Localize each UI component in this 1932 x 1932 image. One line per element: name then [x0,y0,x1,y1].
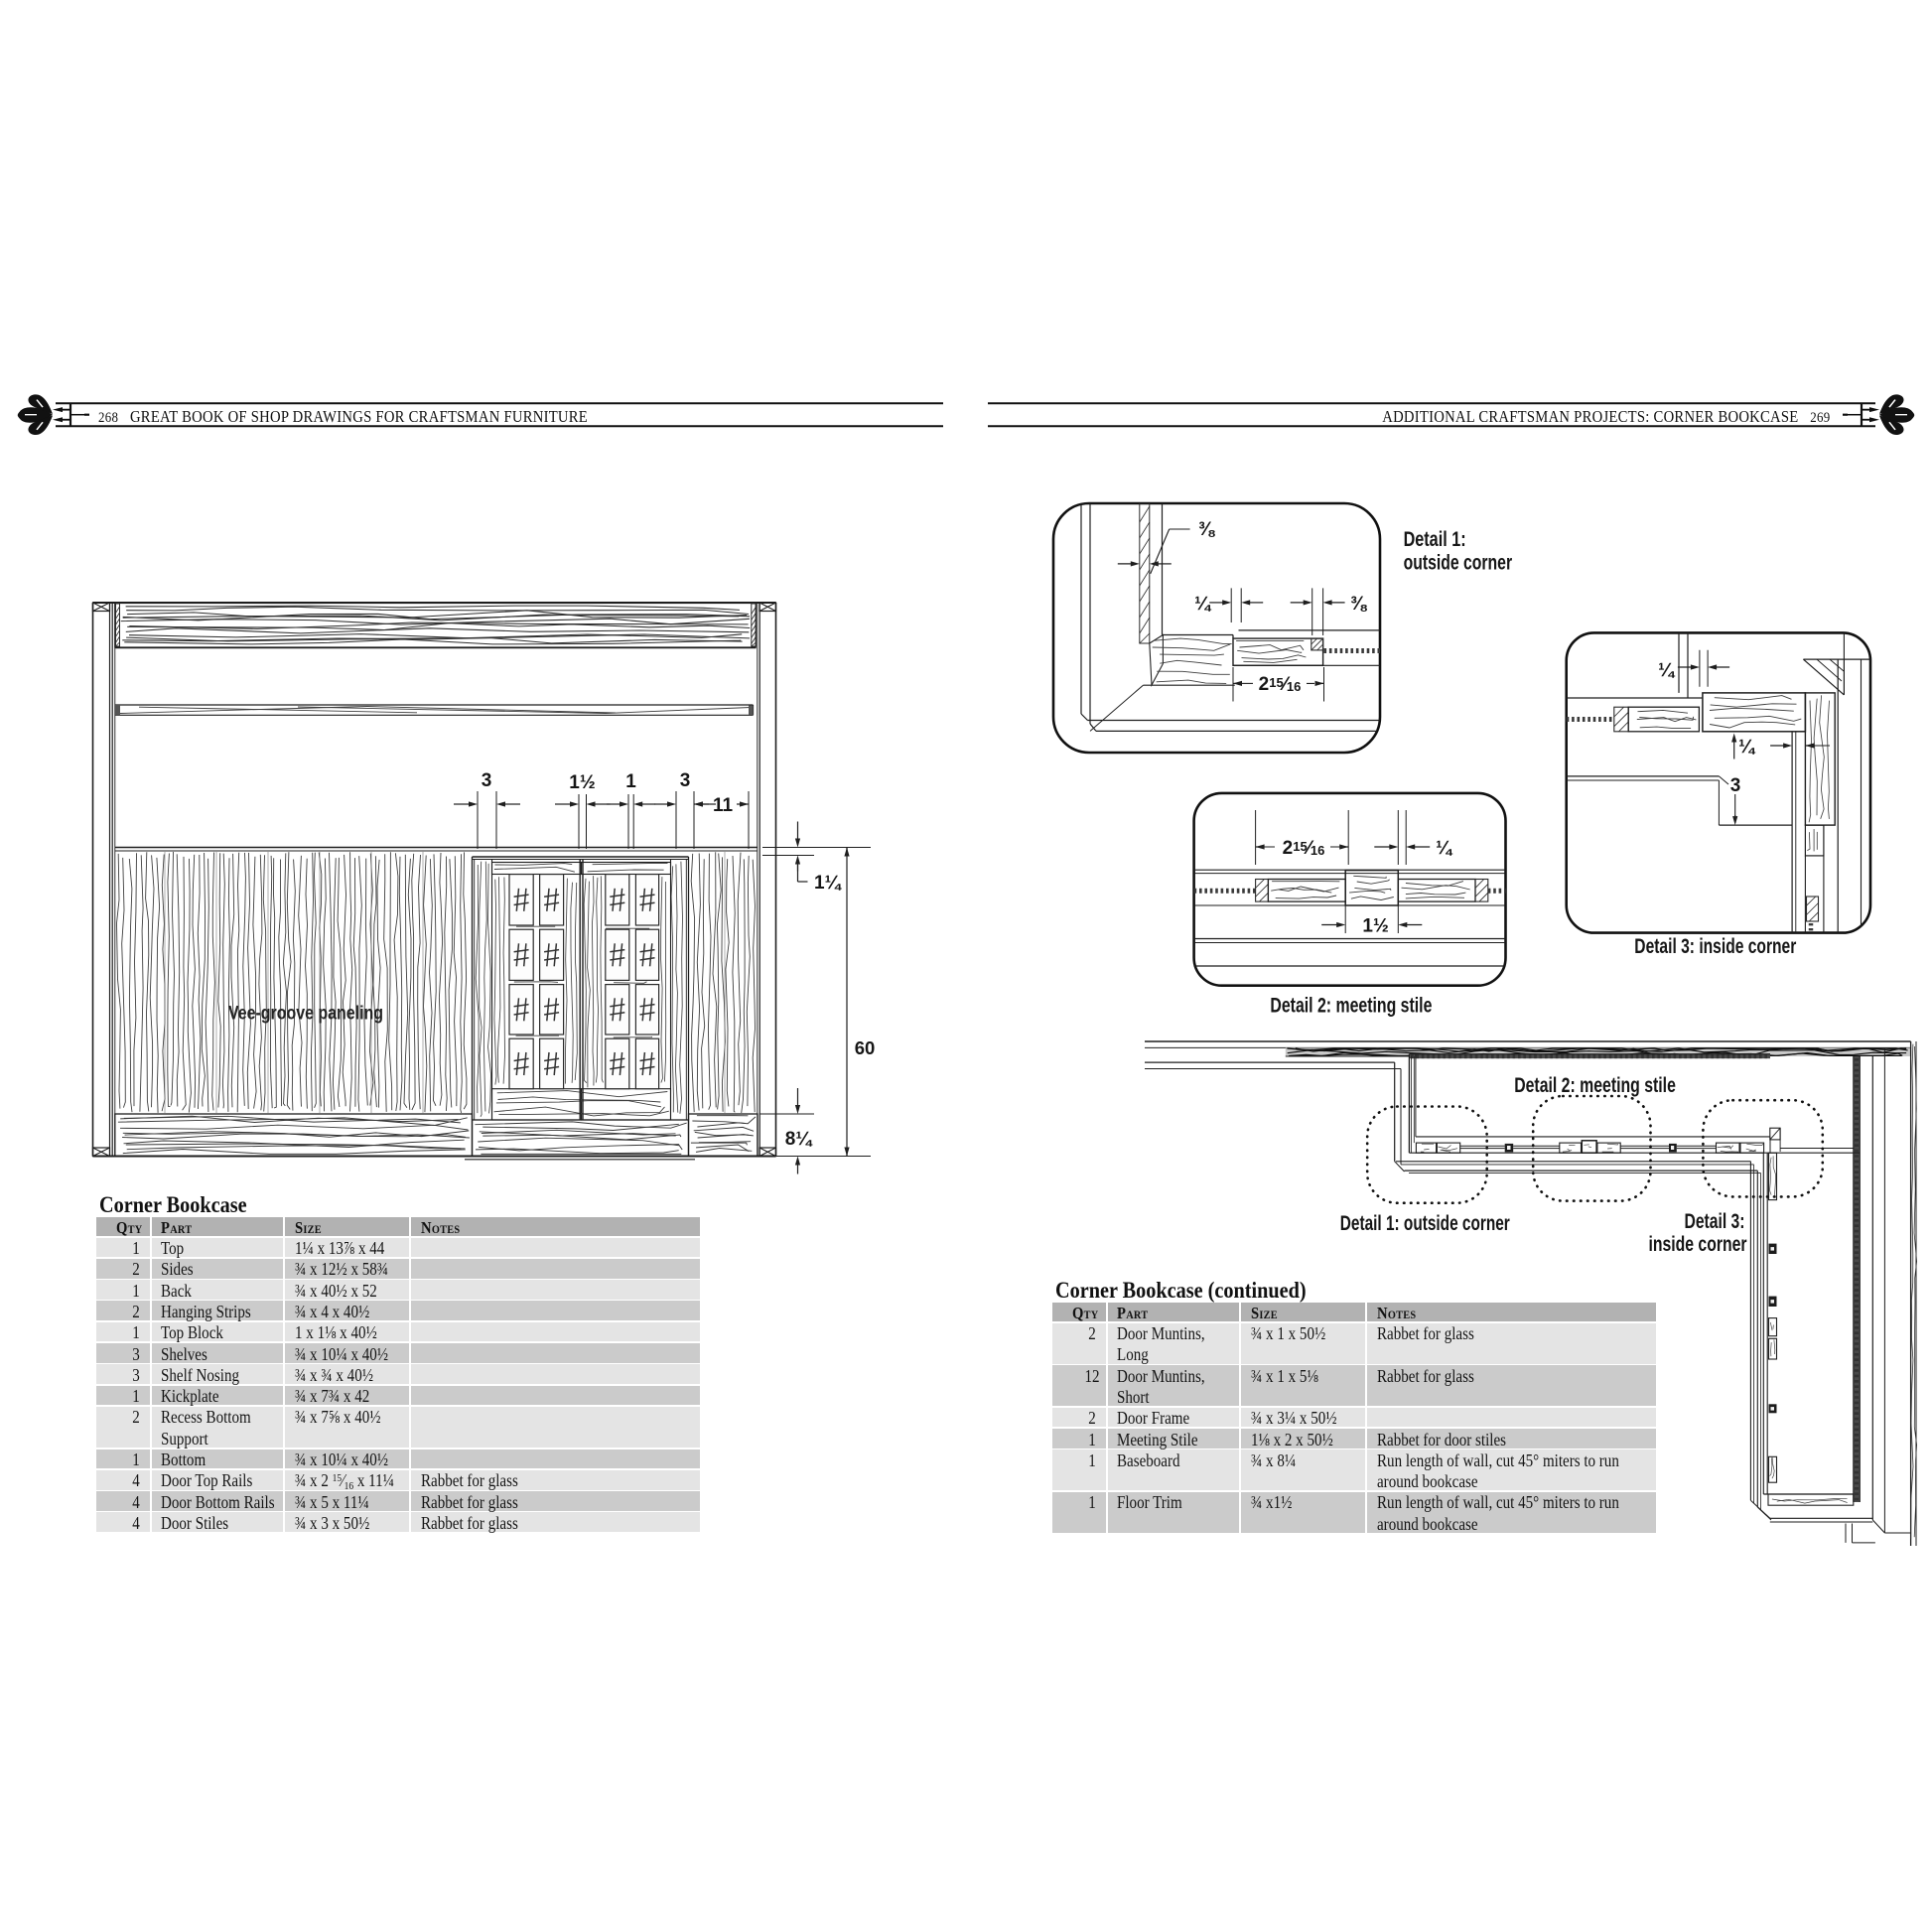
svg-text:⅜: ⅜ [1198,519,1215,540]
svg-text:Detail 3:: Detail 3: [1685,1210,1745,1233]
svg-text:¼: ¼ [1738,737,1756,758]
svg-text:3: 3 [482,770,492,791]
svg-text:Detail 1:: Detail 1: [1404,528,1466,551]
svg-text:1½: 1½ [1362,916,1388,937]
svg-text:215⁄16: 215⁄16 [1259,674,1302,695]
svg-text:Detail 1: outside corner: Detail 1: outside corner [1340,1212,1510,1235]
svg-text:⅜: ⅜ [1350,594,1367,615]
svg-text:¼: ¼ [1194,594,1212,615]
svg-text:3: 3 [1730,775,1741,796]
svg-text:11: 11 [713,795,734,816]
svg-text:inside corner: inside corner [1649,1233,1747,1256]
svg-text:¼: ¼ [1436,838,1453,859]
svg-text:8¼: 8¼ [785,1129,814,1150]
svg-text:Detail 3: inside corner: Detail 3: inside corner [1634,935,1796,958]
svg-text:outside corner: outside corner [1404,552,1513,575]
svg-text:60: 60 [855,1037,876,1058]
svg-text:Detail 2: meeting stile: Detail 2: meeting stile [1270,994,1432,1017]
svg-text:¼: ¼ [1658,660,1676,681]
svg-text:1¼: 1¼ [814,873,843,894]
svg-text:3: 3 [680,770,691,791]
svg-text:Detail 2: meeting stile: Detail 2: meeting stile [1514,1074,1676,1097]
svg-text:215⁄16: 215⁄16 [1283,838,1325,859]
svg-text:1½: 1½ [569,772,595,793]
svg-text:1: 1 [625,771,636,792]
svg-text:Vee-groove paneling: Vee-groove paneling [228,1004,383,1025]
